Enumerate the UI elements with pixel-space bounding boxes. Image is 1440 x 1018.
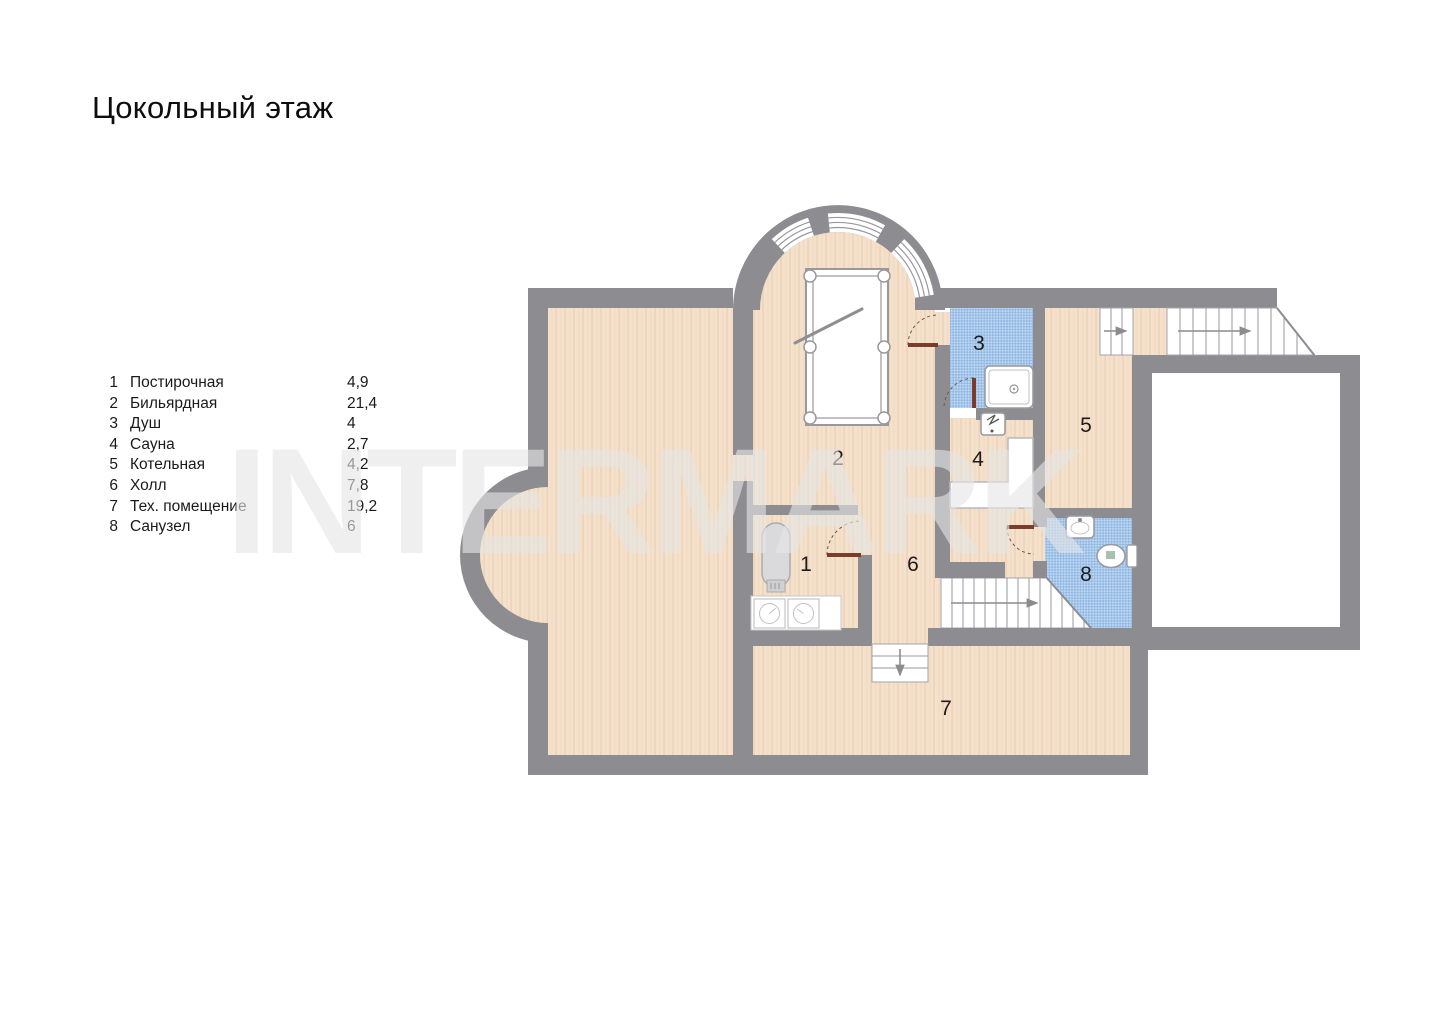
billiard-table: [795, 269, 890, 425]
door-leaf: [908, 343, 938, 347]
wall: [1033, 308, 1045, 510]
room-number-shower: 3: [973, 332, 985, 355]
room-number-laundry: 1: [800, 553, 812, 576]
floor-plan-page: Цокольный этаж 1Постирочная4,9 2Бильярдн…: [0, 0, 1440, 1018]
floor-door-threshold: [935, 312, 950, 345]
pocket: [804, 270, 816, 282]
floor-passage: [733, 453, 753, 483]
pocket: [804, 412, 816, 424]
wall: [1132, 627, 1360, 650]
floor-stair-landing: [1133, 308, 1167, 355]
pocket: [878, 341, 890, 353]
door-leaf: [1007, 525, 1034, 529]
floor-hall-corridor: [872, 628, 928, 646]
wall: [1340, 355, 1360, 650]
wall: [733, 481, 753, 757]
wall: [933, 288, 1277, 308]
floor-hall-corridor: [872, 578, 941, 630]
wall: [1033, 508, 1047, 527]
void-room: [1152, 373, 1340, 627]
wall: [935, 345, 950, 510]
stairs-upper: [1100, 307, 1316, 356]
pocket: [878, 412, 890, 424]
room-number-sauna: 4: [972, 448, 984, 471]
room-number-billiard: 2: [832, 447, 844, 470]
pocket: [804, 341, 816, 353]
wall: [1132, 355, 1152, 650]
wall: [935, 562, 1005, 578]
pocket: [878, 270, 890, 282]
door-leaf: [972, 378, 976, 408]
wall: [528, 755, 1148, 775]
wall: [1130, 645, 1148, 757]
sauna-heater: [981, 413, 1005, 435]
room-number-tech: 7: [940, 697, 952, 720]
floor-left-room: [548, 308, 733, 757]
room-number-bathroom: 8: [1080, 563, 1092, 586]
room-number-hall: 6: [907, 553, 919, 576]
toilet: [1097, 545, 1137, 568]
wall: [733, 310, 753, 455]
door-leaf: [827, 553, 861, 557]
bathroom-sink: [1066, 516, 1094, 538]
wall: [1033, 561, 1047, 578]
wall: [528, 637, 548, 757]
floor-plan: 1 2 3 4 5 6 7 8: [0, 0, 1440, 1018]
water-heater: [762, 523, 790, 592]
laundry-appliances: [751, 596, 841, 630]
shower-tray: [985, 366, 1033, 408]
wall: [528, 288, 733, 308]
wall: [935, 508, 950, 570]
wall: [1132, 355, 1360, 373]
room-number-boiler: 5: [1080, 414, 1092, 437]
floor-door-threshold: [1033, 527, 1047, 561]
wall: [752, 505, 858, 515]
wall: [928, 628, 1132, 646]
stairs-down: [872, 644, 928, 682]
wall: [858, 555, 872, 630]
wall: [528, 308, 548, 473]
wall: [752, 628, 872, 646]
